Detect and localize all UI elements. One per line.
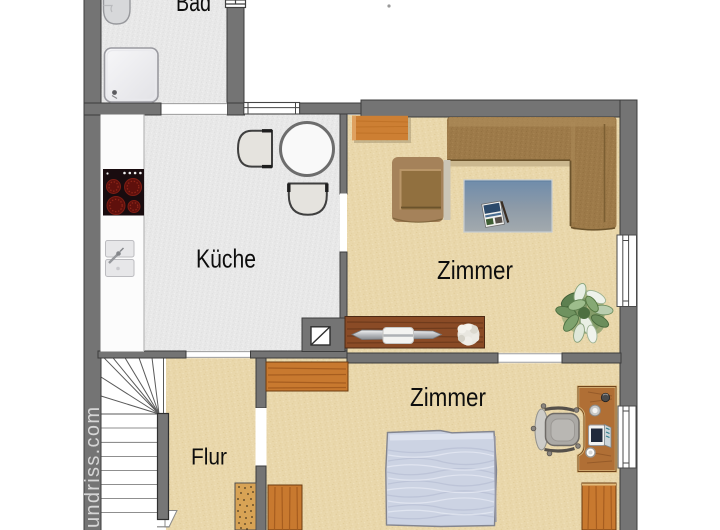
svg-text:Bad: Bad [176,0,211,17]
svg-text:undriss.com: undriss.com [82,407,104,528]
svg-text:Zimmer: Zimmer [437,255,513,285]
svg-text:Küche: Küche [196,244,256,274]
svg-text:Flur: Flur [191,444,227,470]
svg-text:Zimmer: Zimmer [410,382,486,412]
